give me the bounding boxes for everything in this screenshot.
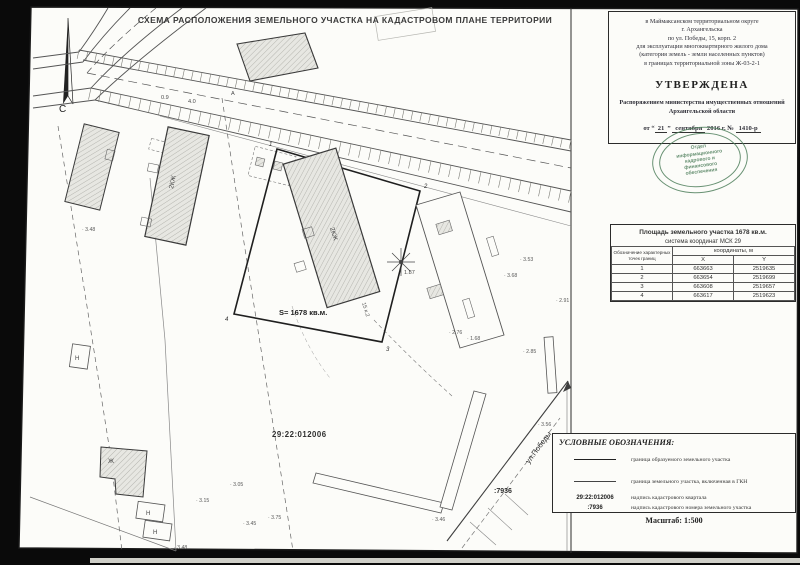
quarter-number-symbol: 29:22:012006	[559, 495, 631, 501]
row-x: 663663	[673, 265, 734, 274]
approval-box: в Маймаксанском территориальном округе г…	[608, 11, 796, 144]
location-line: (категория земель - земли населенных пун…	[609, 51, 795, 59]
parcel-area-label: S= 1678 кв.м.	[279, 308, 327, 317]
location-line: по ул. Победы, 15, корп. 2	[609, 35, 795, 43]
page-title: СХЕМА РАСПОЛОЖЕНИЯ ЗЕМЕЛЬНОГО УЧАСТКА НА…	[90, 15, 600, 25]
quarter-number-label: 29:22:012006	[272, 430, 327, 439]
svg-text:· 3.48: · 3.48	[174, 545, 187, 551]
coordinates-table-box: Площадь земельного участка 1678 кв.м. си…	[610, 224, 796, 302]
building-zh-label: Ж	[108, 458, 114, 465]
legend-label: надпись кадастрового квартала	[631, 495, 707, 501]
svg-text:· 3.48: · 3.48	[82, 227, 95, 233]
row-x: 663617	[673, 292, 734, 301]
date-day: 21	[655, 125, 668, 133]
svg-text:· 2.91: · 2.91	[556, 298, 569, 304]
cad-number-symbol: :7936	[559, 505, 631, 511]
svg-text:· 3.53: · 3.53	[520, 257, 533, 263]
order-line-1: Распоряжением министерства имущественных…	[619, 99, 784, 106]
point-2: 2	[423, 184, 428, 190]
coords-header: координаты, м	[673, 247, 795, 256]
legend-item: 29:22:012006 надпись кадастрового кварта…	[559, 495, 789, 501]
svg-text:0.9: 0.9	[161, 95, 169, 101]
location-line: для эксплуатации многоквартирного жилого…	[609, 43, 795, 51]
approved-word: УТВЕРЖДЕНА	[609, 79, 795, 91]
table-row: 16636632519635	[612, 265, 795, 274]
row-y: 2519635	[734, 265, 795, 274]
table-row: 26636542519699	[612, 274, 795, 283]
legend-box: УСЛОВНЫЕ ОБОЗНАЧЕНИЯ: граница образуемог…	[552, 433, 796, 513]
location-line: в Маймаксанском территориальном округе	[609, 18, 795, 26]
svg-text:· 3.46: · 3.46	[432, 517, 445, 523]
coord-system: система координат МСК 29	[612, 237, 795, 247]
table-title: Площадь земельного участка 1678 кв.м.	[612, 225, 795, 237]
svg-text:А: А	[231, 91, 235, 97]
row-y: 2519657	[734, 283, 795, 292]
svg-text:· 3.75: · 3.75	[268, 515, 281, 521]
point-col-header: Обозначение характерных точек границ	[612, 247, 673, 265]
cadastral-scheme-page: С	[0, 0, 800, 565]
coordinates-table: Площадь земельного участка 1678 кв.м. си…	[611, 225, 795, 301]
legend-label: граница образуемого земельного участка	[631, 457, 730, 463]
svg-text:· 3.15: · 3.15	[196, 498, 209, 504]
legend-item: граница земельного участка, включенная в…	[559, 473, 789, 491]
legend-header: УСЛОВНЫЕ ОБОЗНАЧЕНИЯ:	[559, 438, 789, 447]
n-label-3: Н	[153, 530, 157, 536]
location-line: в границах территориальной зоны Ж-03-2-1	[609, 60, 795, 68]
row-n: 4	[612, 292, 673, 301]
row-y: 2519623	[734, 292, 795, 301]
svg-text:· 3.45: · 3.45	[243, 521, 256, 527]
date-from: от “	[643, 125, 654, 132]
svg-text:· 2.85: · 2.85	[523, 349, 536, 355]
svg-text:· 3.05: · 3.05	[230, 482, 243, 488]
thin-line-symbol	[559, 473, 631, 491]
n-label-2: Н	[146, 511, 150, 517]
row-x: 663654	[673, 274, 734, 283]
point-1: 1	[269, 142, 272, 148]
svg-text:4.0: 4.0	[188, 99, 196, 105]
row-n: 2	[612, 274, 673, 283]
svg-text:· 3.68: · 3.68	[504, 273, 517, 279]
svg-text:· 3.56: · 3.56	[538, 422, 551, 428]
row-n: 1	[612, 265, 673, 274]
row-y: 2519699	[734, 274, 795, 283]
table-row: 36636082519657	[612, 283, 795, 292]
table-row: 46636172519623	[612, 292, 795, 301]
legend-label: надпись кадастрового номера земельного у…	[631, 505, 751, 511]
scale-label: Масштаб: 1:500	[559, 516, 789, 525]
svg-text:· 2.76: · 2.76	[449, 330, 462, 336]
x-header: X	[673, 256, 734, 265]
date-number: 1410-р	[736, 125, 761, 133]
row-n: 3	[612, 283, 673, 292]
legend-label: граница земельного участка, включенная в…	[631, 479, 747, 485]
cad-number-label: :7936	[494, 488, 512, 495]
solid-line-symbol	[559, 451, 631, 469]
date-close: ”	[667, 125, 670, 132]
row-x: 663608	[673, 283, 734, 292]
y-header: Y	[734, 256, 795, 265]
location-line: г. Архангельска	[609, 26, 795, 34]
legend-item: :7936 надпись кадастрового номера земель…	[559, 505, 789, 511]
svg-text:1.87: 1.87	[404, 270, 415, 276]
svg-text:· 1.68: · 1.68	[467, 336, 480, 342]
order-line-2: Архангельской области	[669, 108, 735, 115]
n-label-1: Н	[75, 356, 79, 362]
stamp-text: Отдел информационного кадрового и финанс…	[656, 128, 744, 192]
north-label: С	[59, 104, 66, 115]
legend-item: граница образуемого земельного участка	[559, 451, 789, 469]
